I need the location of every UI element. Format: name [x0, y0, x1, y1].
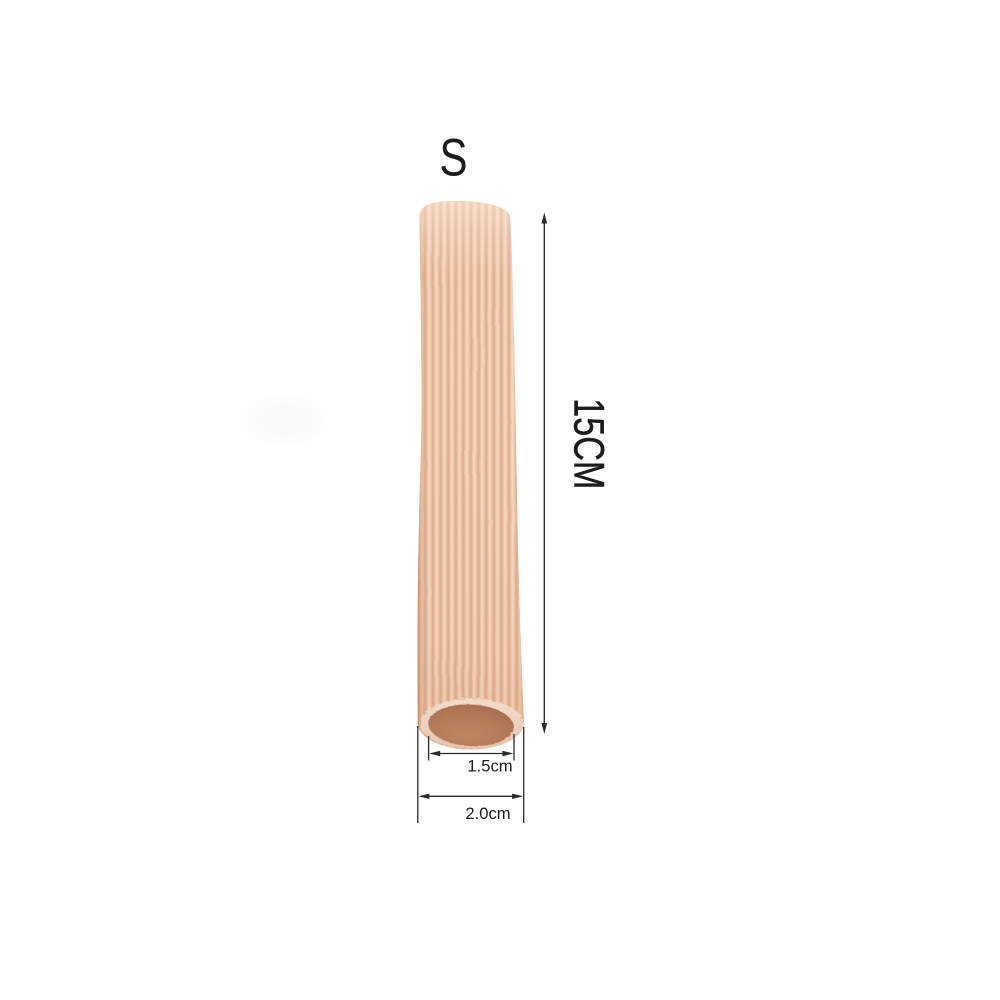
svg-text:15CM: 15CM — [565, 398, 612, 489]
svg-text:S: S — [440, 129, 468, 188]
svg-text:1.5cm: 1.5cm — [467, 757, 512, 776]
svg-text:2.0cm: 2.0cm — [465, 804, 510, 823]
